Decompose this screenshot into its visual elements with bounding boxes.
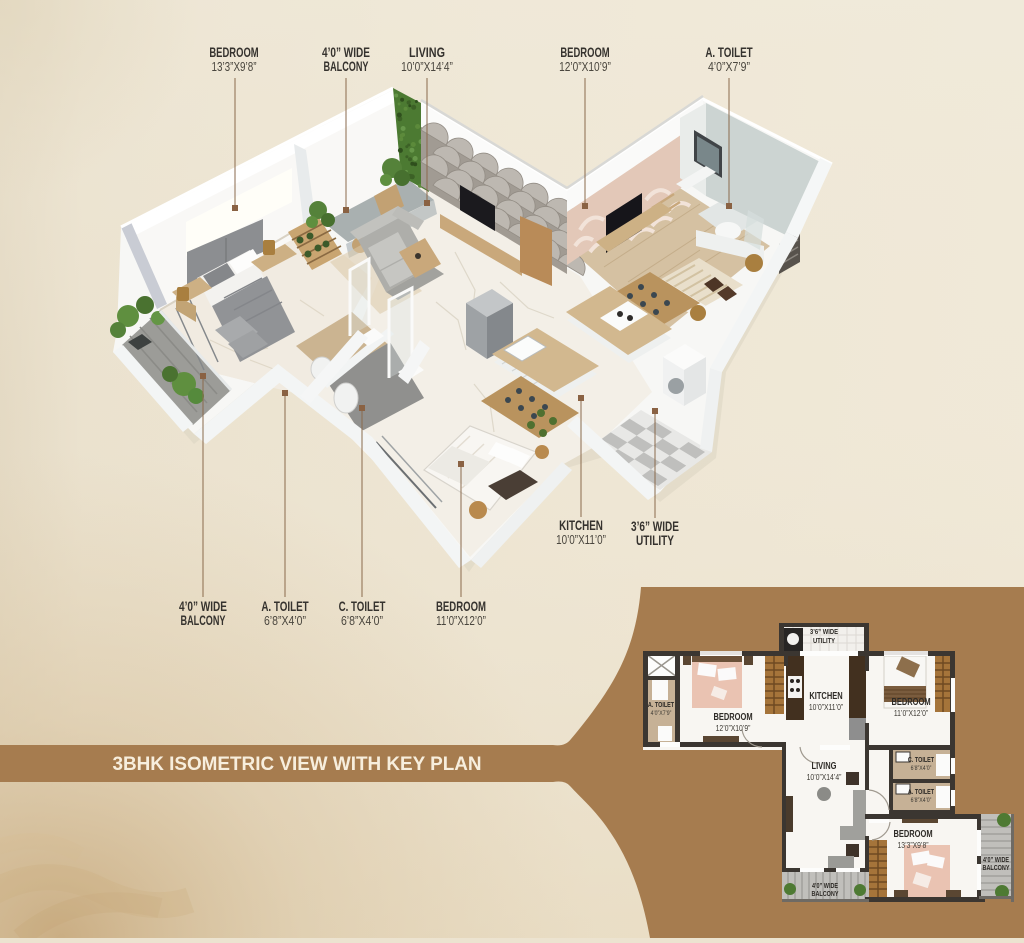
svg-text:6’8”X4’0”: 6’8”X4’0” bbox=[911, 798, 932, 805]
svg-text:UTILITY: UTILITY bbox=[813, 637, 836, 645]
svg-text:4’0” WIDE: 4’0” WIDE bbox=[812, 882, 838, 890]
svg-text:10’0”X14’4”: 10’0”X14’4” bbox=[807, 772, 842, 782]
svg-text:4’0” WIDE: 4’0” WIDE bbox=[179, 599, 227, 615]
svg-text:4’0” WIDE: 4’0” WIDE bbox=[322, 45, 370, 61]
svg-text:BALCONY: BALCONY bbox=[181, 614, 226, 628]
svg-text:C. TOILET: C. TOILET bbox=[908, 756, 934, 764]
svg-text:11’0”X12’0”: 11’0”X12’0” bbox=[436, 615, 486, 629]
svg-text:10’0”X14’4”: 10’0”X14’4” bbox=[401, 60, 453, 74]
svg-text:BEDROOM: BEDROOM bbox=[560, 45, 609, 60]
svg-text:BALCONY: BALCONY bbox=[812, 890, 840, 898]
svg-text:LIVING: LIVING bbox=[409, 45, 445, 60]
svg-text:LIVING: LIVING bbox=[812, 760, 837, 771]
svg-text:A. TOILET: A. TOILET bbox=[648, 701, 674, 709]
svg-text:BEDROOM: BEDROOM bbox=[713, 711, 752, 722]
svg-text:4’0”X7’9”: 4’0”X7’9” bbox=[708, 59, 750, 74]
svg-text:4’0”X7’9”: 4’0”X7’9” bbox=[651, 711, 672, 718]
svg-text:BEDROOM: BEDROOM bbox=[891, 696, 930, 707]
svg-text:11’0”X12’0”: 11’0”X12’0” bbox=[894, 708, 929, 718]
svg-text:UTILITY: UTILITY bbox=[636, 533, 674, 549]
svg-text:6’8”X4’0”: 6’8”X4’0” bbox=[911, 766, 932, 773]
svg-text:BALCONY: BALCONY bbox=[983, 864, 1011, 872]
svg-text:BALCONY: BALCONY bbox=[324, 60, 369, 74]
svg-text:6’8”X4’0”: 6’8”X4’0” bbox=[341, 613, 383, 628]
svg-text:12’0”X10’9”: 12’0”X10’9” bbox=[559, 60, 611, 74]
svg-text:BEDROOM: BEDROOM bbox=[893, 828, 932, 839]
svg-text:KITCHEN: KITCHEN bbox=[559, 517, 603, 533]
svg-text:KITCHEN: KITCHEN bbox=[809, 690, 842, 701]
svg-text:13’3”X9’8”: 13’3”X9’8” bbox=[212, 61, 257, 75]
svg-text:BEDROOM: BEDROOM bbox=[209, 45, 258, 60]
svg-text:10’0”X11’0”: 10’0”X11’0” bbox=[809, 702, 844, 712]
svg-text:3BHK ISOMETRIC VIEW WITH KEY P: 3BHK ISOMETRIC VIEW WITH KEY PLAN bbox=[112, 754, 481, 775]
svg-text:4’0” WIDE: 4’0” WIDE bbox=[983, 856, 1009, 864]
svg-text:10’0”X11’0”: 10’0”X11’0” bbox=[556, 534, 606, 548]
svg-text:12’0”X10’9”: 12’0”X10’9” bbox=[716, 723, 751, 733]
svg-text:BEDROOM: BEDROOM bbox=[436, 599, 486, 614]
svg-text:A. TOILET: A. TOILET bbox=[908, 788, 934, 796]
svg-text:3’6” WIDE: 3’6” WIDE bbox=[810, 628, 838, 636]
svg-text:13’3”X9’8”: 13’3”X9’8” bbox=[898, 840, 929, 850]
svg-text:6’8”X4’0”: 6’8”X4’0” bbox=[264, 613, 306, 628]
